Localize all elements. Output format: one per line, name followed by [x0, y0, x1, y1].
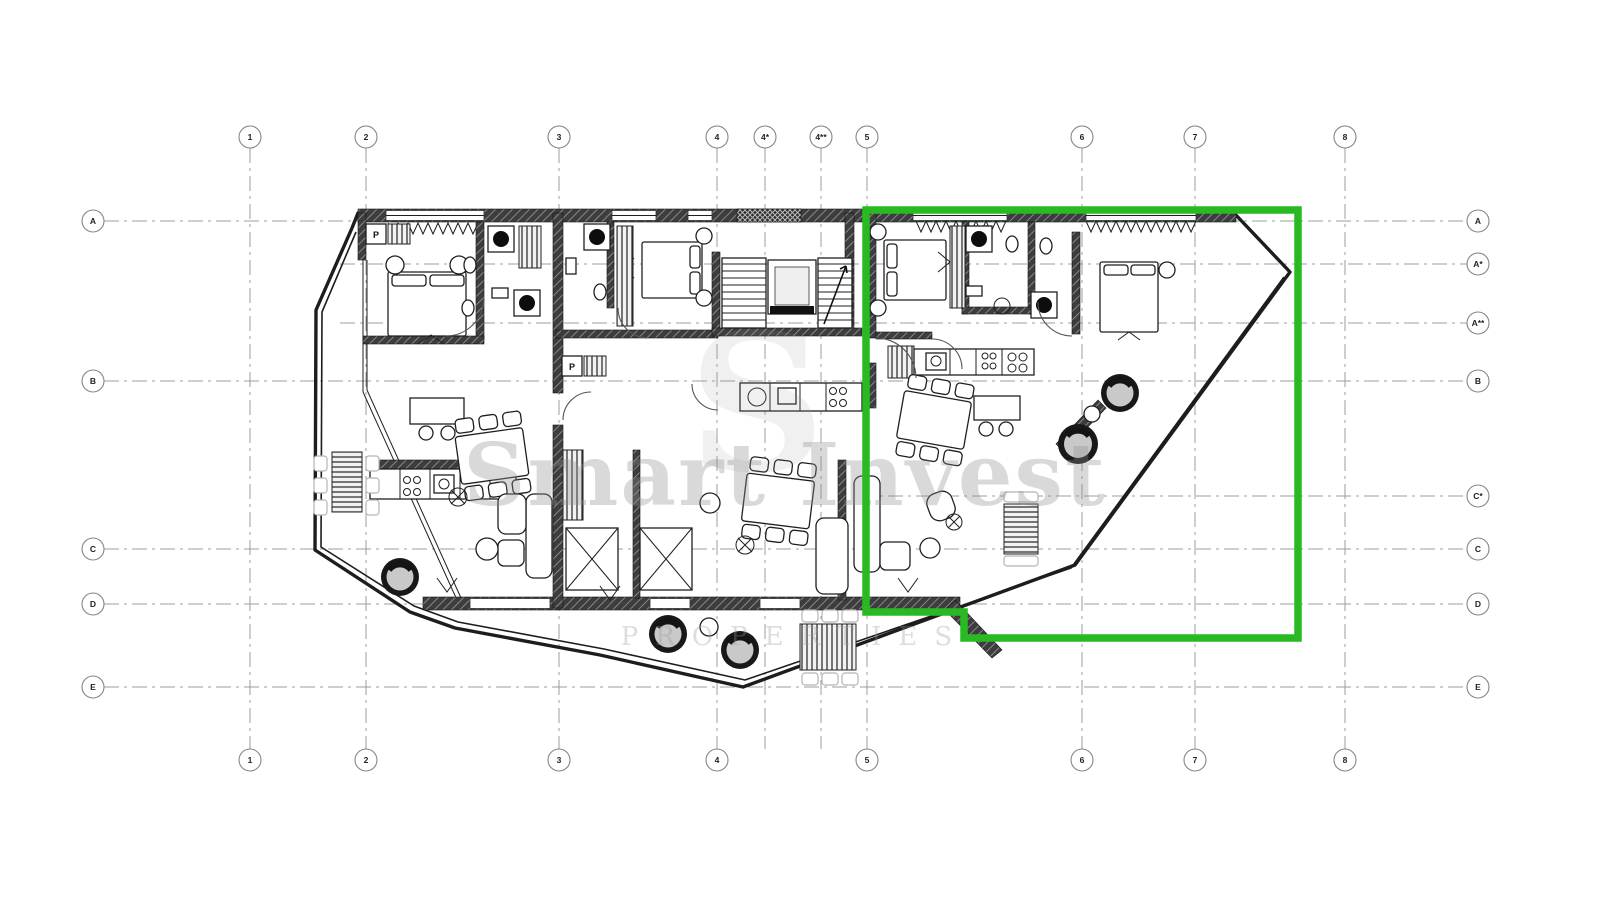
grid-bubble-top-4**-label: 4** [815, 132, 827, 142]
nightstand [1159, 262, 1175, 278]
pillow [430, 275, 464, 286]
toilet [462, 300, 474, 316]
coffee-table [920, 538, 940, 558]
grid-bubble-right-B-label: B [1475, 376, 1481, 386]
toilet [1006, 236, 1018, 252]
chair [765, 527, 785, 543]
terrace-table [332, 452, 362, 512]
grid-bubble-top-1-label: 1 [248, 132, 253, 142]
grid-bubble-bottom-1-label: 1 [248, 755, 253, 765]
hot-tub [1101, 374, 1139, 412]
terrace-chair [314, 456, 327, 471]
floor-plan-drawing: 112233444*4**55667788AAA*A**BBC*CCDDEE [0, 0, 1600, 900]
grid-bubble-bottom-3-label: 3 [557, 755, 562, 765]
single-bed [566, 528, 618, 590]
kitchen-island [410, 398, 464, 440]
interior-wall [876, 332, 932, 339]
nightstand [696, 228, 712, 244]
fridge [888, 346, 914, 378]
curtain-zigzag [1086, 221, 1196, 232]
interior-wall [476, 222, 484, 340]
door-swing-mark [898, 578, 918, 592]
single-bed [640, 528, 692, 590]
grid-bubble-top-8-label: 8 [1343, 132, 1348, 142]
shower-drain [971, 231, 987, 247]
grid-bubble-top-4*-label: 4* [761, 132, 770, 142]
grid-bubble-bottom-4-label: 4 [715, 755, 720, 765]
grid-bubble-bottom-6-label: 6 [1080, 755, 1085, 765]
bathroom [966, 226, 1057, 318]
grid-bubble-left-A-label: A [90, 216, 96, 226]
washing-machine-label: P [569, 362, 575, 372]
grid-bubble-right-D-label: D [1475, 599, 1481, 609]
toilet [464, 257, 476, 273]
ottoman [498, 540, 524, 566]
wardrobe [617, 226, 633, 326]
dryer [388, 224, 410, 244]
grid-bubble-right-A*-label: A* [1473, 259, 1483, 269]
terrace-chair [802, 673, 818, 685]
terrace-chair [314, 478, 327, 493]
hot-tub [381, 558, 419, 596]
sofa-seat [880, 542, 910, 570]
wardrobe [519, 226, 541, 268]
grid-bubble-left-E-label: E [90, 682, 96, 692]
dryer [584, 356, 606, 376]
terrace-chair [822, 610, 838, 622]
grid-bubble-bottom-2-label: 2 [364, 755, 369, 765]
grid-bubble-right-E-label: E [1475, 682, 1481, 692]
pillow [887, 244, 897, 268]
grid-bubble-top-4-label: 4 [715, 132, 720, 142]
grid-bubble-top-6-label: 6 [1080, 132, 1085, 142]
grid-bubble-left-D-label: D [90, 599, 96, 609]
pillow [1104, 265, 1128, 275]
terrace-chair [366, 500, 379, 515]
watermark-subtitle: PROPERTIES [621, 622, 969, 652]
wardrobe [950, 226, 965, 308]
grid-bubble-left-C-label: C [90, 544, 96, 554]
pillow [392, 275, 426, 286]
door-swing-mark [437, 578, 457, 592]
lounger-end [1004, 556, 1038, 566]
terrace-chair [314, 500, 327, 515]
terrace-chair [366, 478, 379, 493]
washing-machine-label: P [373, 230, 379, 240]
interior-wall [1072, 232, 1080, 334]
toilet [1040, 238, 1052, 254]
coffee-table [476, 538, 498, 560]
stair-core-wall [737, 209, 801, 222]
pillow [690, 272, 700, 294]
apartment-right-unit [854, 213, 1175, 592]
chair [907, 374, 927, 391]
window [470, 599, 550, 609]
grid-bubble-top-3-label: 3 [557, 132, 562, 142]
double-bed [386, 256, 468, 344]
island [974, 396, 1020, 420]
grid-bubble-right-C*-label: C* [1473, 491, 1483, 501]
bar-stool [441, 426, 455, 440]
nightstand [386, 256, 404, 274]
shower-drain [519, 295, 535, 311]
blanket-fold [1118, 332, 1140, 340]
grid-bubble-top-5-label: 5 [865, 132, 870, 142]
bar-stool [419, 426, 433, 440]
chair [741, 524, 761, 540]
door-swing [563, 392, 591, 420]
toilet [594, 284, 606, 300]
grid-bubble-left-B-label: B [90, 376, 96, 386]
terrace-chair [842, 610, 858, 622]
sofa [816, 518, 848, 594]
terrace-chair [822, 673, 838, 685]
nightstand [870, 300, 886, 316]
pillow [887, 272, 897, 296]
watermark-title: Smart Invest [463, 425, 1106, 526]
terrace-chair [366, 456, 379, 471]
sink [492, 288, 508, 298]
plant-leaves [738, 538, 752, 552]
grid-bubble-right-C-label: C [1475, 544, 1481, 554]
terrace-dining-set [314, 452, 379, 515]
window [650, 599, 690, 609]
double-bed [870, 224, 946, 316]
grid-bubble-top-2-label: 2 [364, 132, 369, 142]
chair [954, 382, 974, 399]
terrace-chair [842, 673, 858, 685]
floor-plan-page: 112233444*4**55667788AAA*A**BBC*CCDDEE [0, 0, 1600, 900]
chair [789, 530, 809, 546]
grid-bubble-bottom-7-label: 7 [1193, 755, 1198, 765]
west-wall-corner [358, 213, 366, 260]
shower-drain [589, 229, 605, 245]
grid-bubble-right-A-label: A [1475, 216, 1481, 226]
bathroom [566, 224, 610, 300]
grid-bubble-right-A**-label: A** [1472, 318, 1485, 328]
sink [966, 286, 982, 296]
terrace-chair [802, 610, 818, 622]
shower-drain [493, 231, 509, 247]
window [760, 599, 800, 609]
pillow [690, 246, 700, 268]
pillow [1131, 265, 1155, 275]
grid-bubble-bottom-8-label: 8 [1343, 755, 1348, 765]
grid-bubble-bottom-5-label: 5 [865, 755, 870, 765]
side-table [1084, 406, 1100, 422]
chair [931, 378, 951, 395]
nightstand [870, 224, 886, 240]
sink [566, 258, 576, 274]
grid-bubble-top-7-label: 7 [1193, 132, 1198, 142]
double-bed [1100, 262, 1175, 340]
